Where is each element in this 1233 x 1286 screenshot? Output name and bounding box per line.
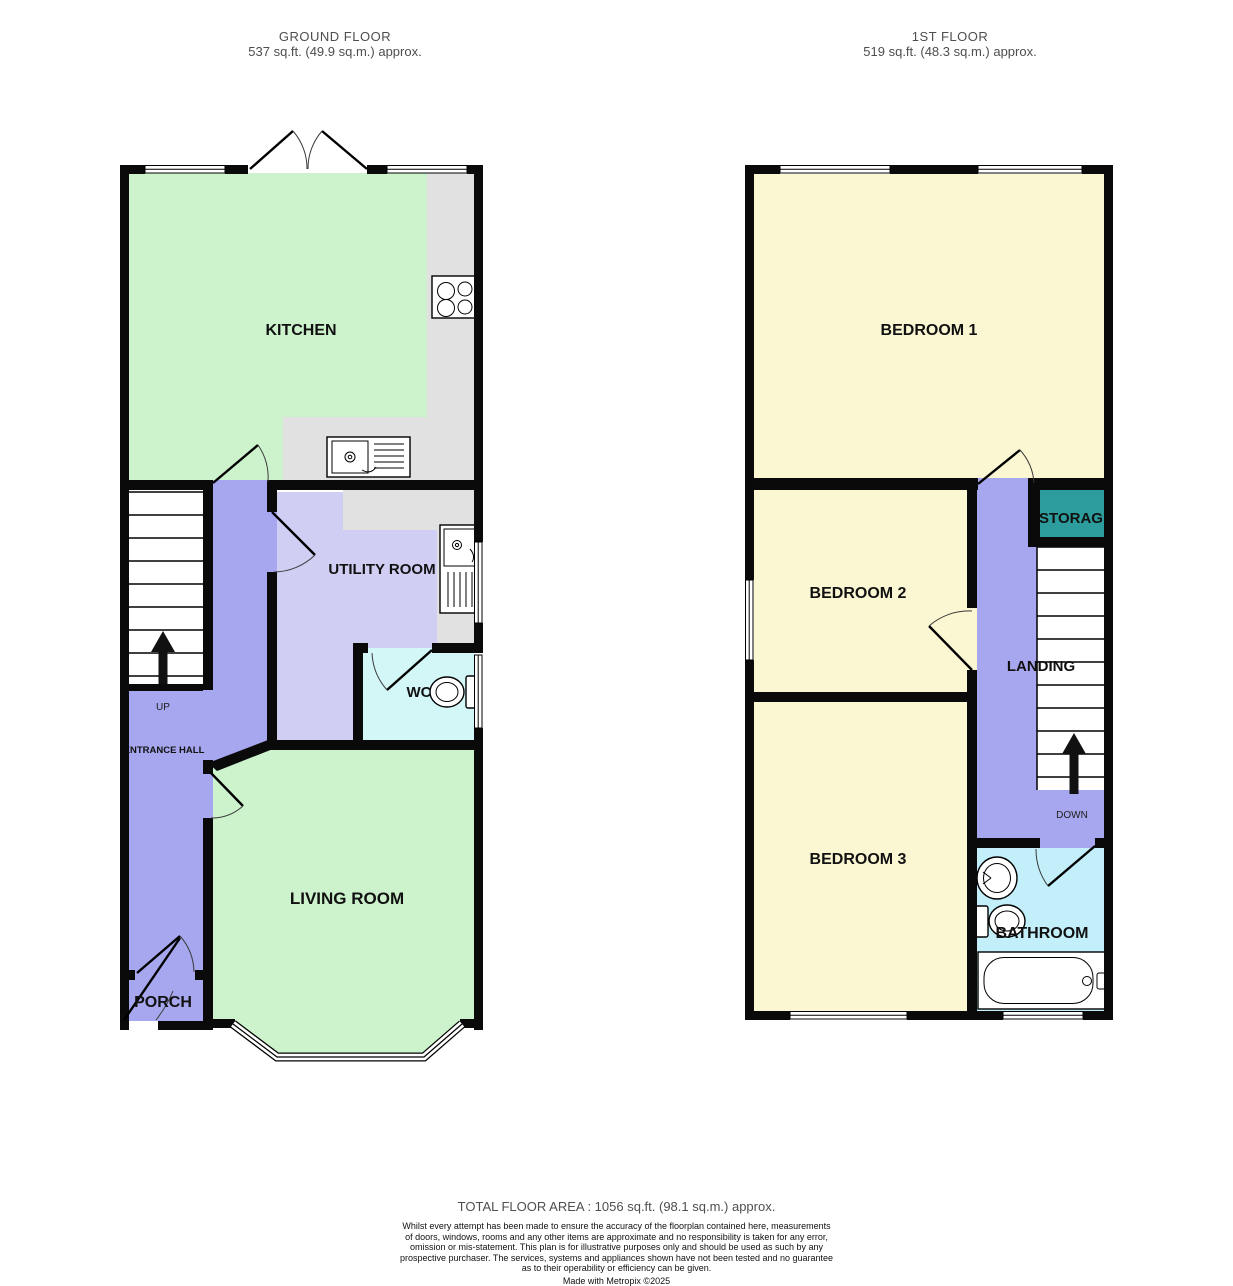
room-fills-ground [123,173,478,1057]
kitchen-sink-icon [327,437,410,477]
ground-floor-header: GROUND FLOOR 537 sq.ft. (49.9 sq.m.) app… [130,29,540,59]
total-floor-area: TOTAL FLOOR AREA : 1056 sq.ft. (98.1 sq.… [0,1199,1233,1214]
first-floor-title: 1ST FLOOR [745,29,1155,44]
metropix-credit: Made with Metropix ©2025 [0,1276,1233,1286]
kitchen-counter-right [427,173,474,480]
room-label-bedroom2: BEDROOM 2 [810,585,907,602]
room-label-kitchen: KITCHEN [265,322,336,339]
first-floor-area: 519 sq.ft. (48.3 sq.m.) approx. [745,44,1155,59]
room-label-utility: UTILITY ROOM [328,561,435,578]
room-label-wc: WC [407,684,432,701]
disclaimer-line: Whilst every attempt has been made to en… [0,1221,1233,1232]
room-label-storage: STORAGE [1039,510,1113,527]
bathtub-icon [978,952,1106,1009]
room-living [213,744,478,1023]
room-utility-lower [277,650,353,743]
disclaimer-line: as to their operability or efficiency ca… [0,1263,1233,1274]
room-label-bedroom3: BEDROOM 3 [810,851,907,868]
first-floor-plan: STORAGE BEDROOM 1 BEDROOM 2 [735,140,1125,1030]
ground-floor-title: GROUND FLOOR [130,29,540,44]
floorplan-canvas: { "ground_floor": { "title": "GROUND FLO… [0,0,1233,1280]
first-floor-header: 1ST FLOOR 519 sq.ft. (48.3 sq.m.) approx… [745,29,1155,59]
ground-floor-plan: ENTRANCE HALL [110,120,510,1070]
room-label-bathroom: BATHROOM [995,925,1088,942]
ground-floor-area: 537 sq.ft. (49.9 sq.m.) approx. [130,44,540,59]
disclaimer: Whilst every attempt has been made to en… [0,1221,1233,1274]
utility-counter-top [343,488,474,530]
hob-icon [432,276,478,318]
room-label-landing: LANDING [1007,658,1075,675]
room-label-porch: PORCH [134,994,192,1011]
room-label-bedroom1: BEDROOM 1 [881,322,978,339]
room-entrance-hall-corridor [207,480,277,765]
stairs-up-label: UP [156,702,170,713]
room-label-living: LIVING ROOM [290,889,404,908]
disclaimer-line: of doors, windows, rooms and any other i… [0,1232,1233,1243]
disclaimer-line: omission or mis-statement. This plan is … [0,1242,1233,1253]
toilet-icon [430,676,480,708]
french-doors [250,131,367,169]
room-label-entrance-hall: ENTRANCE HALL [124,745,205,756]
stairs-down-label: DOWN [1056,810,1088,821]
footer: TOTAL FLOOR AREA : 1056 sq.ft. (98.1 sq.… [0,1199,1233,1286]
disclaimer-line: prospective purchaser. The services, sys… [0,1253,1233,1264]
